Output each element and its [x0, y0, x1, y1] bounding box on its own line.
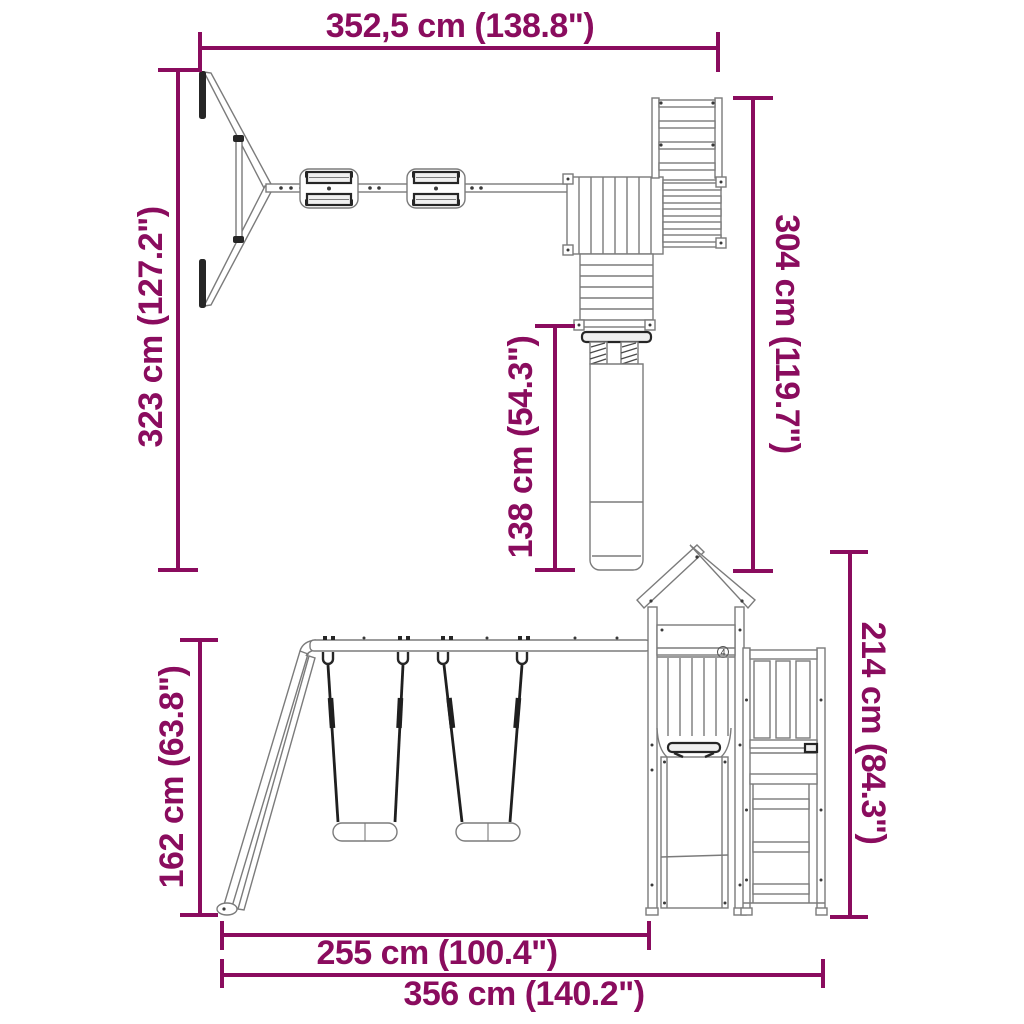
dim-line-frame-height	[198, 640, 202, 917]
dim-label-tower-depth: 304 cm (119.7")	[770, 214, 804, 453]
slide-elevation	[657, 728, 731, 908]
slide-plan	[582, 332, 651, 570]
dim-tick	[733, 96, 773, 100]
dim-tick	[830, 550, 868, 554]
dim-tick	[821, 959, 825, 988]
dim-tick	[716, 32, 720, 72]
dim-label-overall-length: 356 cm (140.2")	[403, 977, 644, 1011]
dimension-diagram: 4	[0, 0, 1024, 1024]
swing-1-elevation	[323, 652, 408, 841]
dim-line-tower-depth	[751, 98, 755, 571]
part-marker: 4	[720, 648, 725, 658]
dim-tick	[830, 915, 868, 919]
swing-seat-1-plan	[300, 169, 358, 208]
swing-seat-2-plan	[407, 169, 465, 208]
bottom-view-drawing: 4	[217, 545, 827, 915]
dim-tick	[535, 324, 575, 328]
dim-line-depth	[176, 70, 180, 570]
dim-tick	[220, 959, 224, 988]
dim-tick	[220, 921, 224, 950]
dim-tick	[158, 568, 198, 572]
bridge-plan	[663, 177, 726, 248]
a-frame-plan	[199, 71, 271, 308]
dim-line-overall-width	[200, 46, 720, 50]
dim-tick	[158, 68, 198, 72]
dim-tick	[733, 569, 773, 573]
dim-tick	[647, 921, 651, 950]
dim-label-slide-length: 138 cm (54.3")	[504, 336, 538, 559]
dim-label-tower-height: 214 cm (84.3")	[856, 622, 890, 845]
dim-tick	[180, 913, 218, 917]
dim-label-depth: 323 cm (127.2")	[134, 206, 168, 447]
tower-elevation: 4	[637, 545, 755, 915]
ladder-plan	[652, 98, 722, 178]
dim-label-overall-width: 352,5 cm (138.8")	[326, 9, 594, 43]
annex-elevation	[741, 648, 827, 915]
steps-plan	[574, 254, 655, 330]
dim-line-slide-length	[553, 326, 557, 570]
dim-label-swing-section: 255 cm (100.4")	[316, 936, 557, 970]
tower-deck-plan	[563, 174, 663, 255]
dim-tick	[180, 638, 218, 642]
swing-2-elevation	[438, 652, 527, 841]
dim-line-tower-height	[848, 552, 852, 917]
swing-frame-elevation	[217, 636, 650, 915]
dim-tick	[198, 32, 202, 72]
dim-label-frame-height: 162 cm (63.8")	[155, 666, 189, 889]
dim-tick	[535, 568, 575, 572]
top-view-drawing	[199, 71, 726, 570]
